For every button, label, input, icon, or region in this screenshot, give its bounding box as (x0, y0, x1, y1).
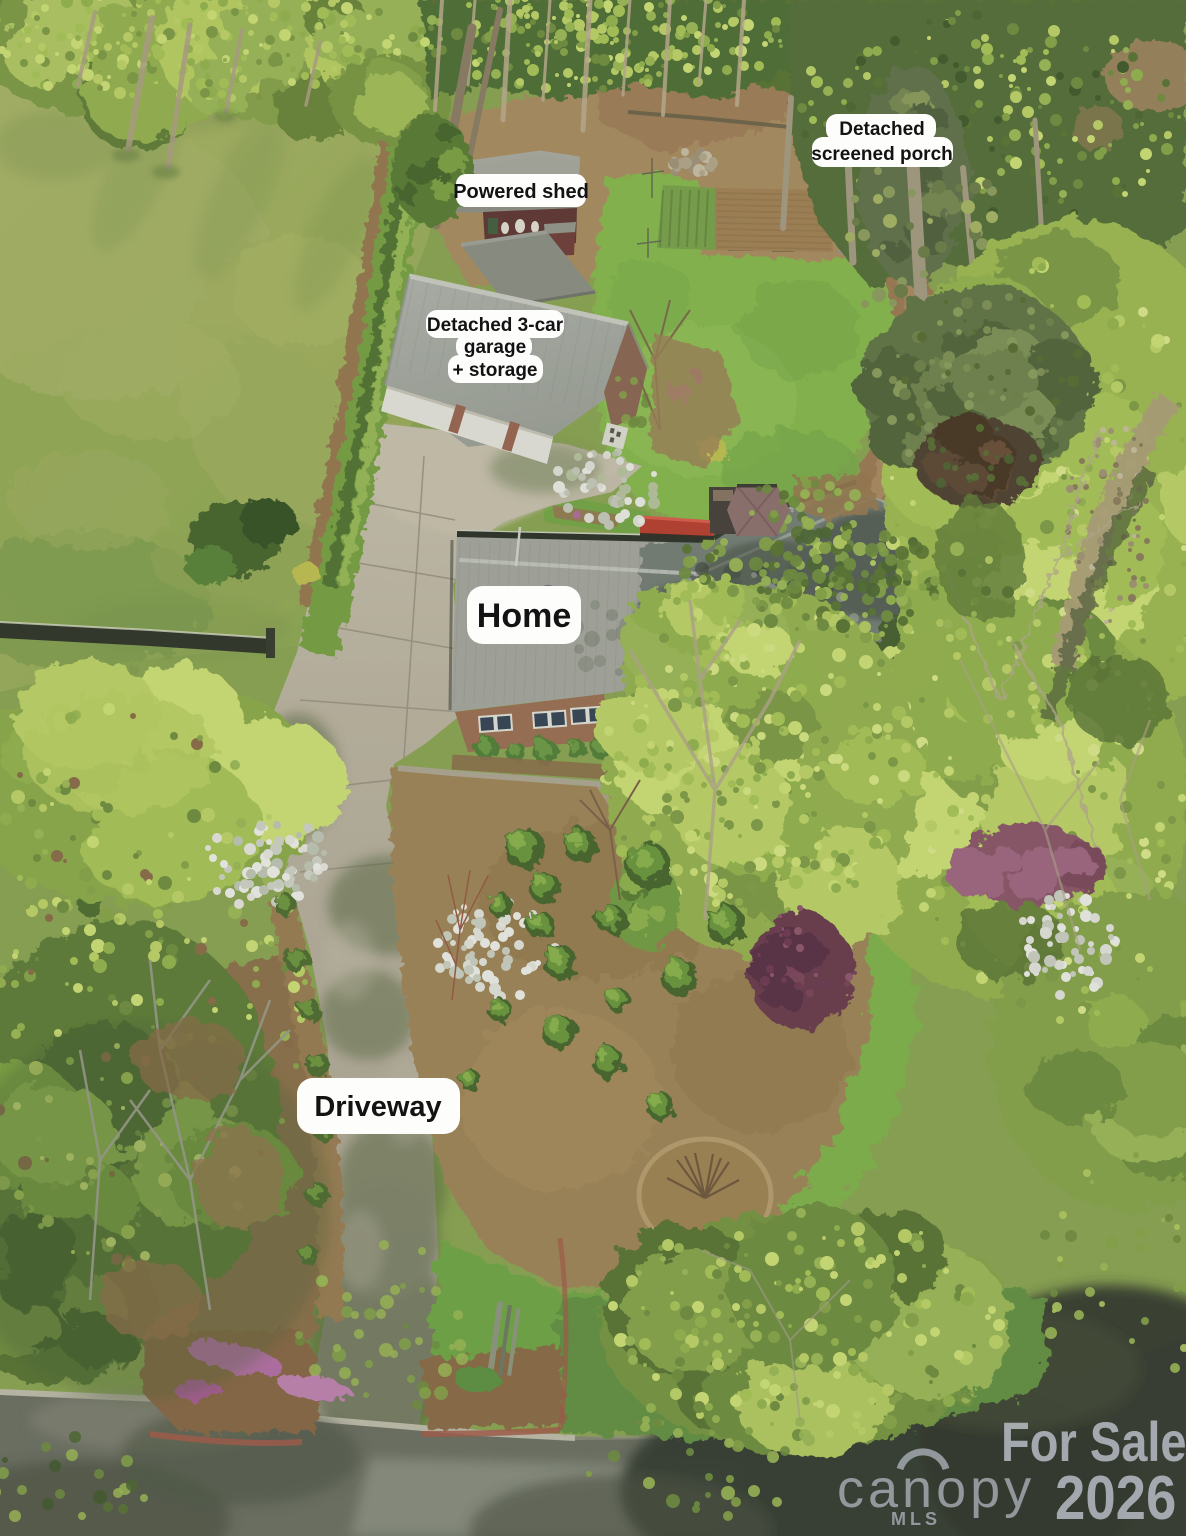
svg-text:Home: Home (477, 597, 571, 635)
svg-text:+ storage: + storage (452, 360, 537, 381)
svg-text:garage: garage (464, 337, 526, 358)
svg-text:screened porch: screened porch (811, 144, 953, 165)
svg-text:Powered shed: Powered shed (453, 181, 589, 203)
svg-text:Driveway: Driveway (314, 1091, 441, 1123)
svg-text:MLS: MLS (891, 1509, 941, 1529)
svg-text:2026: 2026 (1055, 1464, 1176, 1533)
svg-text:Detached: Detached (839, 119, 925, 140)
svg-text:Detached 3-car: Detached 3-car (427, 315, 564, 336)
